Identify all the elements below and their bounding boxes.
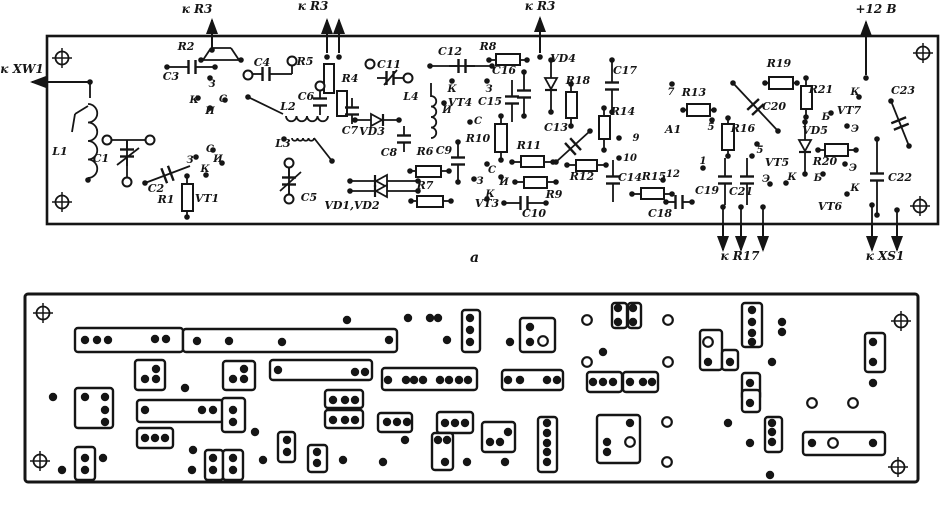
svg-text:7: 7 <box>668 87 675 98</box>
svg-text:R4: R4 <box>341 72 359 85</box>
svg-text:VT7: VT7 <box>837 104 862 117</box>
svg-text:З: З <box>485 84 492 95</box>
svg-text:12: 12 <box>666 169 680 180</box>
svg-text:C10: C10 <box>522 207 546 220</box>
svg-text:R11: R11 <box>516 139 541 152</box>
svg-text:З: З <box>476 176 483 187</box>
svg-text:C13: C13 <box>544 121 568 134</box>
svg-text:И: И <box>498 177 509 188</box>
svg-text:C15: C15 <box>478 95 502 108</box>
svg-text:R6: R6 <box>416 145 434 158</box>
svg-text:Э: Э <box>851 124 859 135</box>
svg-text:C6: C6 <box>298 90 315 103</box>
svg-text:R10: R10 <box>465 132 491 145</box>
svg-text:C16: C16 <box>492 64 516 77</box>
svg-text:C19: C19 <box>695 184 719 197</box>
svg-text:VT1: VT1 <box>195 192 219 205</box>
svg-text:Э: Э <box>849 163 857 174</box>
svg-text:С: С <box>488 165 496 176</box>
svg-text:R15: R15 <box>641 170 666 183</box>
svg-text:C11: C11 <box>377 58 401 71</box>
svg-text:L4: L4 <box>402 90 418 103</box>
svg-text:С: С <box>474 116 482 127</box>
svg-text:К: К <box>199 164 210 175</box>
svg-text:Э: Э <box>762 174 770 185</box>
svg-text:R7: R7 <box>416 179 434 192</box>
svg-text:VD3: VD3 <box>359 125 385 138</box>
svg-text:C5: C5 <box>301 191 317 204</box>
svg-text:Б: Б <box>813 173 823 184</box>
svg-text:L2: L2 <box>279 100 296 113</box>
svg-text:R18: R18 <box>565 74 591 87</box>
svg-text:R13: R13 <box>681 86 707 99</box>
svg-text:к XW1: к XW1 <box>0 62 43 76</box>
svg-text:10: 10 <box>623 153 637 164</box>
svg-text:к R3: к R3 <box>182 2 213 16</box>
svg-text:R14: R14 <box>610 105 635 118</box>
svg-text:R5: R5 <box>296 55 314 68</box>
svg-text:C17: C17 <box>613 64 637 77</box>
svg-text:C12: C12 <box>438 45 462 58</box>
svg-text:к R3: к R3 <box>298 0 329 13</box>
svg-text:VD4: VD4 <box>550 52 576 65</box>
svg-text:к R3: к R3 <box>525 0 556 13</box>
svg-text:R16: R16 <box>730 122 756 135</box>
svg-text:C7: C7 <box>342 124 359 137</box>
svg-text:5: 5 <box>757 145 764 156</box>
svg-text:C1: C1 <box>93 152 109 165</box>
svg-text:К: К <box>786 172 797 183</box>
svg-text:R9: R9 <box>545 188 563 201</box>
figure-caption: а <box>470 250 479 266</box>
pcb-layout-figure: R2C3C4R5C6L2R4C7VD3C8C11L4C12R8C16VD4R18… <box>0 0 951 506</box>
svg-text:9: 9 <box>633 133 640 144</box>
svg-text:К: К <box>484 189 495 200</box>
svg-text:+12 В: +12 В <box>855 2 896 16</box>
svg-text:L1: L1 <box>51 145 67 158</box>
svg-text:C22: C22 <box>888 171 912 184</box>
svg-text:C4: C4 <box>254 56 270 69</box>
svg-text:З: З <box>186 155 193 166</box>
svg-text:VT5: VT5 <box>765 156 789 169</box>
svg-text:C21: C21 <box>729 185 753 198</box>
svg-text:R21: R21 <box>808 83 833 96</box>
svg-text:К: К <box>849 183 860 194</box>
svg-text:И: И <box>212 154 223 165</box>
svg-text:С: С <box>219 94 227 105</box>
svg-text:VT6: VT6 <box>818 200 843 213</box>
svg-text:R19: R19 <box>766 57 792 70</box>
svg-text:к XS1: к XS1 <box>866 249 905 263</box>
svg-text:К: К <box>188 95 199 106</box>
svg-text:R8: R8 <box>479 40 497 53</box>
svg-text:L3: L3 <box>274 137 291 150</box>
svg-text:1: 1 <box>700 156 707 167</box>
svg-text:А1: А1 <box>664 123 682 136</box>
solder-side-view <box>25 294 918 482</box>
svg-text:C8: C8 <box>381 146 398 159</box>
svg-text:C18: C18 <box>648 207 672 220</box>
svg-text:VD1,VD2: VD1,VD2 <box>324 199 380 212</box>
svg-text:И: И <box>204 106 215 117</box>
svg-text:VD5: VD5 <box>802 124 828 137</box>
svg-text:R20: R20 <box>812 155 838 168</box>
svg-text:C23: C23 <box>891 84 915 97</box>
svg-text:К: К <box>849 87 860 98</box>
svg-text:R1: R1 <box>157 193 175 206</box>
svg-text:5: 5 <box>708 122 715 133</box>
svg-text:К: К <box>446 84 457 95</box>
svg-text:R12: R12 <box>569 170 595 183</box>
svg-text:C20: C20 <box>762 100 786 113</box>
svg-text:З: З <box>208 79 215 90</box>
svg-text:к R17: к R17 <box>721 249 761 263</box>
svg-text:C14: C14 <box>618 171 642 184</box>
component-side-view: R2C3C4R5C6L2R4C7VD3C8C11L4C12R8C16VD4R18… <box>0 0 938 263</box>
svg-text:C3: C3 <box>163 70 180 83</box>
svg-text:Б: Б <box>821 112 831 123</box>
svg-text:C9: C9 <box>436 144 453 157</box>
svg-text:R2: R2 <box>177 40 195 53</box>
svg-text:И: И <box>441 105 452 116</box>
